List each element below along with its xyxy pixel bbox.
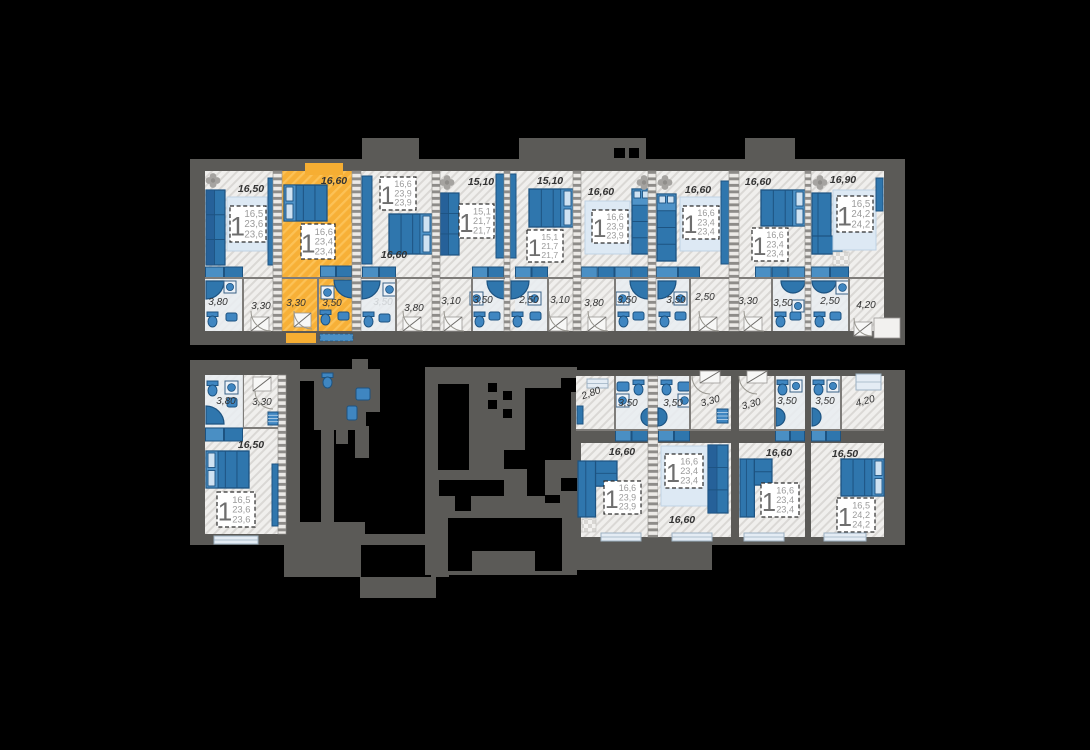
svg-text:1: 1: [593, 216, 607, 243]
svg-text:16,60: 16,60: [321, 175, 347, 187]
svg-text:3,10: 3,10: [550, 295, 570, 306]
svg-text:1: 1: [230, 212, 245, 242]
svg-text:2,50: 2,50: [518, 295, 539, 306]
svg-text:16,60: 16,60: [766, 447, 792, 459]
svg-text:2,50: 2,50: [694, 292, 715, 303]
svg-text:23,9: 23,9: [394, 198, 411, 208]
svg-text:3,50: 3,50: [815, 396, 835, 407]
svg-text:3,80: 3,80: [208, 297, 228, 308]
svg-text:3,80: 3,80: [216, 396, 236, 407]
svg-text:16,60: 16,60: [381, 249, 407, 261]
svg-text:1: 1: [753, 234, 767, 261]
svg-text:1: 1: [666, 460, 680, 488]
svg-text:16,90: 16,90: [830, 174, 856, 186]
svg-text:3,30: 3,30: [738, 296, 758, 307]
svg-text:16,60: 16,60: [588, 186, 614, 198]
svg-text:1: 1: [838, 504, 852, 532]
svg-text:1: 1: [762, 489, 776, 517]
svg-text:3,30: 3,30: [286, 298, 306, 309]
svg-text:3,30: 3,30: [251, 301, 271, 312]
svg-text:3,50: 3,50: [663, 398, 683, 409]
svg-text:3,30: 3,30: [252, 397, 272, 408]
svg-text:24,2: 24,2: [852, 510, 870, 520]
svg-text:3,50: 3,50: [773, 298, 793, 309]
svg-text:1: 1: [381, 183, 395, 210]
svg-text:23,4: 23,4: [315, 246, 333, 257]
svg-text:1: 1: [218, 497, 233, 527]
svg-text:3,50: 3,50: [322, 298, 342, 309]
svg-text:16,50: 16,50: [238, 439, 264, 451]
svg-text:23,4: 23,4: [680, 466, 698, 476]
svg-text:16,60: 16,60: [609, 446, 635, 458]
svg-text:23,9: 23,9: [619, 502, 636, 512]
svg-text:3,50: 3,50: [473, 295, 493, 306]
svg-text:21,7: 21,7: [473, 226, 491, 236]
svg-text:16,50: 16,50: [238, 183, 264, 195]
svg-text:21,7: 21,7: [541, 250, 558, 260]
svg-text:3,50: 3,50: [618, 398, 638, 409]
svg-text:16,60: 16,60: [685, 184, 711, 196]
svg-text:15,1: 15,1: [473, 207, 491, 217]
svg-text:16,60: 16,60: [669, 514, 695, 526]
svg-text:16,60: 16,60: [745, 176, 771, 188]
svg-text:16,6: 16,6: [680, 457, 698, 467]
svg-text:23,6: 23,6: [244, 229, 263, 240]
svg-text:16,6: 16,6: [776, 486, 794, 496]
svg-text:23,6: 23,6: [232, 514, 250, 525]
svg-text:3,50: 3,50: [777, 396, 797, 407]
svg-text:21,7: 21,7: [473, 216, 491, 226]
svg-text:15,10: 15,10: [468, 176, 494, 188]
svg-text:23,4: 23,4: [776, 495, 794, 505]
svg-text:24,2: 24,2: [851, 219, 870, 230]
svg-text:1: 1: [837, 202, 852, 232]
svg-text:3,10: 3,10: [441, 296, 461, 307]
svg-text:3,50: 3,50: [666, 295, 686, 306]
svg-text:3,80: 3,80: [584, 298, 604, 309]
svg-text:3,50: 3,50: [617, 295, 637, 306]
svg-text:15,10: 15,10: [537, 175, 563, 187]
svg-text:2,50: 2,50: [819, 296, 840, 307]
svg-text:1: 1: [528, 235, 541, 262]
svg-text:23,4: 23,4: [697, 227, 714, 237]
svg-text:24,2: 24,2: [852, 520, 870, 530]
svg-text:23,4: 23,4: [766, 249, 783, 259]
svg-text:1: 1: [301, 229, 316, 259]
svg-text:1: 1: [684, 212, 698, 239]
svg-text:1: 1: [459, 210, 473, 238]
svg-text:1: 1: [605, 487, 619, 514]
svg-text:23,9: 23,9: [606, 231, 623, 241]
svg-text:23,4: 23,4: [776, 505, 794, 515]
svg-text:4,20: 4,20: [856, 300, 876, 311]
svg-text:3,80: 3,80: [404, 303, 424, 314]
svg-text:16,5: 16,5: [852, 501, 870, 511]
svg-text:23,4: 23,4: [680, 476, 698, 486]
svg-text:16,50: 16,50: [832, 448, 858, 460]
